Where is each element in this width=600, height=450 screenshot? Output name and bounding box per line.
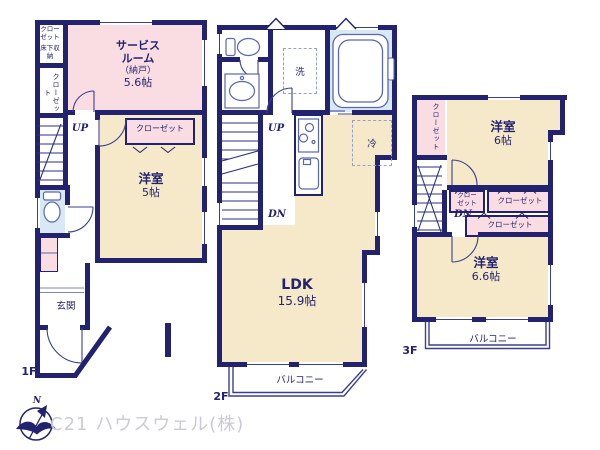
western-room-6-label: 洋室 6帖: [471, 120, 535, 148]
floor-label-3f: 3F: [398, 345, 422, 358]
kitchen-counter: [295, 115, 322, 195]
closet-b-label: クローゼット: [489, 197, 551, 206]
service-room-sub: （納戸）: [88, 66, 188, 77]
floor-label-2f: 2F: [209, 391, 233, 404]
closet-left-label: クローゼット: [44, 72, 60, 114]
floor-label-1f: 1F: [17, 366, 41, 379]
watermark: C21 ハウスウェル(株): [50, 410, 244, 436]
western-room-5-name: 洋室: [111, 172, 191, 187]
entrance-step-lines: [40, 288, 84, 293]
closet-chevrons: [133, 147, 536, 219]
closet-left-label-3f: クローゼット: [424, 103, 440, 151]
western-room-5-size: 5帖: [111, 187, 191, 200]
western-room-5-label: 洋室 5帖: [111, 172, 191, 200]
toilet-icon-2f: [226, 39, 260, 56]
vent-triangle-icons: [266, 19, 356, 30]
service-room-size: 5.6帖: [88, 77, 188, 90]
sink-icon: [299, 158, 319, 189]
down-label-2f: DN: [262, 209, 292, 221]
washbasin-icon: [225, 74, 259, 108]
up-label-1f: UP: [66, 123, 94, 135]
closet-top-label: クローゼット: [38, 26, 62, 41]
western-room-66-name: 洋室: [448, 256, 524, 271]
ldk-size: 15.9帖: [251, 294, 343, 308]
shower-panel-icon: [388, 58, 394, 80]
closet-a-label: クローゼット: [455, 192, 479, 207]
fridge-box: 冷: [352, 120, 392, 166]
toilet-icon-1f: [44, 192, 61, 222]
ldk-name: LDK: [251, 277, 343, 294]
floorplan-canvas: クローゼット 床下収納 クローゼット UP サービスルーム （納戸） 5.6帖 …: [0, 0, 600, 450]
service-room-label: サービスルーム （納戸） 5.6帖: [88, 40, 188, 90]
washer-label: 洗: [295, 64, 305, 78]
stairs-icon-3f: [417, 165, 442, 232]
entrance-label: 玄関: [48, 301, 84, 312]
western-room-6-size: 6帖: [471, 135, 535, 148]
closet-room-label: クローゼット: [127, 124, 193, 133]
porch-diagonal-wall: [75, 327, 110, 376]
down-label-3f: DN: [449, 209, 477, 221]
closet-c-label: クローゼット: [467, 221, 553, 230]
bathtub-icon: [333, 35, 388, 108]
fridge-label: 冷: [367, 136, 377, 150]
washer-box: 洗: [283, 48, 317, 94]
ldk-label: LDK 15.9帖: [251, 277, 343, 308]
underfloor-storage-label: 床下収納: [38, 45, 62, 60]
western-room-66-label: 洋室 6.6帖: [448, 256, 524, 284]
balcony-label-2f: バルコニー: [264, 375, 336, 386]
stairs-icon-2f: [222, 123, 258, 219]
stairs-icon-1f: [37, 124, 63, 182]
compass-north-label: N: [30, 396, 44, 407]
western-room-6-name: 洋室: [471, 120, 535, 135]
balcony-label-3f: バルコニー: [457, 334, 529, 345]
western-room-66-size: 6.6帖: [448, 271, 524, 284]
up-label-2f: UP: [261, 123, 291, 135]
service-room-name: サービスルーム: [114, 40, 162, 66]
